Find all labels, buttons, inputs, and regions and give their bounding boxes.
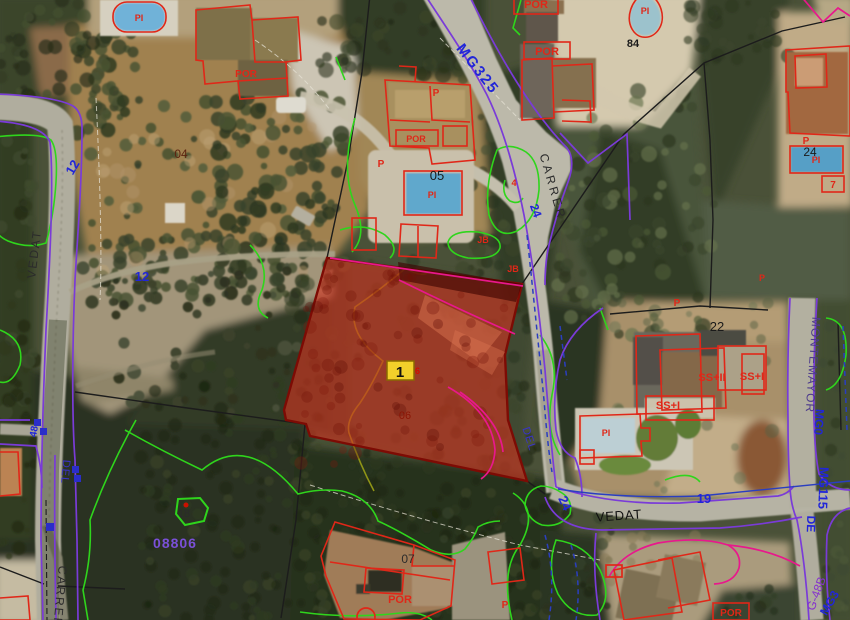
- svg-text:SS+II: SS+II: [698, 372, 725, 384]
- svg-text:PI: PI: [428, 190, 437, 200]
- svg-text:7: 7: [830, 180, 836, 191]
- svg-text:19: 19: [697, 491, 711, 506]
- svg-text:4: 4: [511, 178, 516, 188]
- svg-text:08806: 08806: [153, 535, 197, 551]
- svg-text:P: P: [674, 298, 681, 309]
- svg-text:04: 04: [174, 147, 188, 161]
- svg-text:84: 84: [627, 38, 640, 50]
- svg-text:PI: PI: [602, 428, 611, 438]
- svg-text:05: 05: [430, 168, 444, 183]
- svg-text:POR: POR: [524, 0, 548, 11]
- svg-text:6: 6: [415, 366, 420, 376]
- svg-text:DEL: DEL: [58, 459, 72, 484]
- svg-text:DE: DE: [804, 515, 819, 532]
- svg-text:MG0: MG0: [811, 409, 827, 436]
- svg-text:P: P: [433, 88, 440, 99]
- svg-text:P: P: [502, 600, 509, 611]
- svg-text:06: 06: [399, 410, 411, 422]
- svg-text:P: P: [378, 159, 385, 170]
- svg-text:JB: JB: [507, 264, 519, 274]
- svg-text:SS+I: SS+I: [740, 371, 764, 383]
- svg-text:07: 07: [401, 552, 415, 566]
- svg-text:22: 22: [710, 319, 724, 334]
- svg-text:P: P: [803, 136, 810, 147]
- svg-text:MG115: MG115: [815, 467, 831, 509]
- svg-text:P: P: [759, 273, 765, 283]
- svg-text:POR: POR: [235, 69, 257, 80]
- svg-text:POR: POR: [720, 608, 742, 619]
- svg-text:POR: POR: [535, 46, 559, 58]
- svg-text:POR: POR: [406, 134, 426, 144]
- svg-text:SS+I: SS+I: [656, 400, 680, 412]
- svg-text:12: 12: [135, 269, 149, 284]
- svg-text:PI: PI: [812, 155, 821, 165]
- svg-text:JB: JB: [477, 235, 489, 245]
- svg-text:POR: POR: [388, 594, 412, 606]
- svg-text:PI: PI: [135, 13, 144, 23]
- svg-text:1: 1: [396, 364, 404, 381]
- svg-text:PI: PI: [641, 6, 650, 16]
